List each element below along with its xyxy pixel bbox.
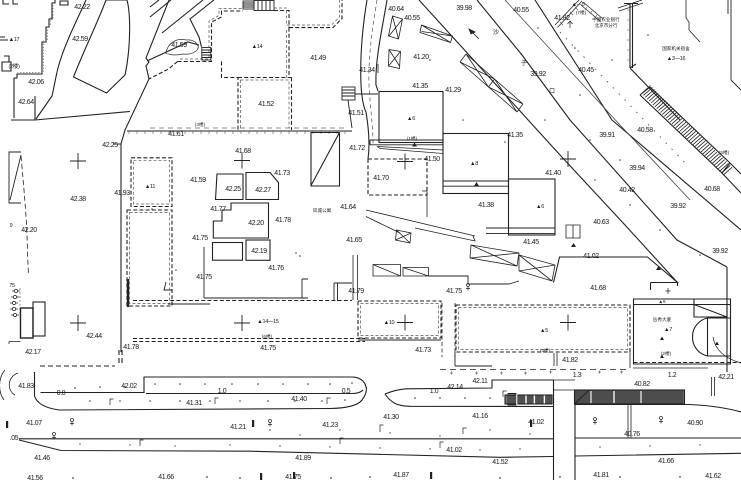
svg-text:41.76: 41.76 — [268, 265, 284, 272]
svg-text:1.0: 1.0 — [218, 388, 227, 395]
svg-text:42.02: 42.02 — [121, 383, 137, 390]
svg-text:▲10: ▲10 — [384, 320, 395, 326]
svg-text:42.25: 42.25 — [225, 186, 241, 193]
svg-text:42.21: 42.21 — [718, 374, 734, 381]
svg-text:41.78: 41.78 — [275, 217, 291, 224]
svg-text:(3楼): (3楼) — [540, 347, 551, 354]
svg-text:41.82: 41.82 — [554, 15, 570, 22]
svg-text:41.31: 41.31 — [186, 400, 202, 407]
svg-text:▲6: ▲6 — [658, 299, 666, 304]
svg-text:1.0: 1.0 — [430, 388, 439, 395]
svg-text:沙: 沙 — [493, 29, 499, 36]
svg-text:41.02: 41.02 — [528, 419, 544, 426]
svg-text:40.64: 40.64 — [388, 6, 404, 13]
svg-text:41.61: 41.61 — [168, 131, 184, 138]
svg-text:41.75: 41.75 — [446, 288, 462, 295]
svg-text:(1楼): (1楼) — [407, 135, 418, 142]
svg-text:39.98: 39.98 — [456, 5, 472, 12]
svg-text:.05: .05 — [10, 435, 19, 442]
svg-text:41.87: 41.87 — [393, 472, 409, 479]
svg-text:42.64: 42.64 — [18, 99, 34, 106]
svg-text:凤城公寓: 凤城公寓 — [313, 207, 332, 214]
svg-text:40.76: 40.76 — [624, 431, 640, 438]
svg-text:41.49: 41.49 — [310, 55, 326, 62]
svg-text:42.14: 42.14 — [447, 384, 463, 391]
svg-text:42.44: 42.44 — [86, 333, 102, 340]
svg-text:41.89: 41.89 — [295, 455, 311, 462]
svg-text:40.82: 40.82 — [634, 381, 650, 388]
svg-text:41.75: 41.75 — [260, 345, 276, 352]
svg-text:41.16: 41.16 — [472, 413, 488, 420]
svg-text:41.34: 41.34 — [359, 67, 375, 74]
svg-text:41.07: 41.07 — [26, 420, 42, 427]
svg-text:40.55: 40.55 — [513, 7, 529, 14]
svg-text:42.20: 42.20 — [21, 227, 37, 234]
svg-text:(2楼): (2楼) — [8, 62, 19, 70]
svg-text:42.17: 42.17 — [25, 349, 41, 356]
svg-text:42.19: 42.19 — [251, 248, 267, 255]
svg-text:42.11: 42.11 — [473, 378, 489, 385]
svg-text:▲5: ▲5 — [540, 328, 548, 334]
svg-text:40.63: 40.63 — [593, 219, 609, 226]
svg-text:▲—5: ▲—5 — [571, 2, 584, 8]
svg-text:40.90: 40.90 — [687, 420, 703, 427]
svg-text:41.50: 41.50 — [424, 156, 440, 163]
svg-text:岳秀大厦: 岳秀大厦 — [653, 316, 672, 323]
svg-text:(5楼): (5楼) — [719, 149, 730, 156]
svg-text:41.66: 41.66 — [158, 474, 174, 480]
svg-text:41.38: 41.38 — [478, 202, 494, 209]
svg-text:41.52: 41.52 — [492, 459, 508, 466]
svg-text:41.52: 41.52 — [258, 101, 274, 108]
svg-text:41.73: 41.73 — [274, 170, 290, 177]
svg-text:41.82: 41.82 — [562, 357, 578, 364]
svg-text:▲17: ▲17 — [9, 37, 20, 43]
svg-text:42.27: 42.27 — [255, 187, 271, 194]
svg-text:41.62: 41.62 — [705, 473, 721, 480]
svg-text:40.58: 40.58 — [637, 127, 653, 134]
svg-text:(7楼): (7楼) — [576, 9, 587, 16]
svg-text:▲14: ▲14 — [252, 44, 263, 50]
svg-text:41.29: 41.29 — [445, 87, 461, 94]
svg-text:0.5: 0.5 — [342, 388, 351, 395]
svg-text:42.59: 42.59 — [72, 36, 88, 43]
svg-text:(6楼): (6楼) — [262, 333, 273, 340]
svg-text:41.81: 41.81 — [593, 472, 609, 479]
svg-text:40.45: 40.45 — [578, 67, 594, 74]
svg-text:(3楼): (3楼) — [195, 121, 206, 128]
svg-text:39.92: 39.92 — [670, 203, 686, 210]
svg-text:41.64: 41.64 — [340, 204, 356, 211]
svg-text:39.92: 39.92 — [530, 71, 546, 78]
svg-text:41.66: 41.66 — [658, 458, 674, 465]
svg-text:北京市分行: 北京市分行 — [595, 22, 618, 29]
svg-text:42.22: 42.22 — [74, 4, 90, 11]
svg-text:75: 75 — [9, 283, 15, 289]
svg-text:▲6: ▲6 — [407, 116, 415, 122]
svg-text:41.46: 41.46 — [34, 455, 50, 462]
svg-text:41.21: 41.21 — [230, 424, 246, 431]
svg-text:▲14—15: ▲14—15 — [257, 319, 279, 325]
svg-text:▲11: ▲11 — [145, 184, 155, 190]
svg-text:42.38: 42.38 — [70, 196, 86, 203]
svg-text:41.75: 41.75 — [196, 274, 212, 281]
svg-text:▲7: ▲7 — [664, 327, 672, 333]
svg-text:41.70: 41.70 — [373, 175, 389, 182]
svg-text:41.40: 41.40 — [291, 396, 307, 403]
svg-text:▲8: ▲8 — [470, 161, 478, 167]
svg-text:(2楼): (2楼) — [661, 350, 672, 357]
svg-text:42.20: 42.20 — [248, 220, 264, 227]
svg-text:41.75: 41.75 — [285, 474, 301, 480]
svg-text:41.35: 41.35 — [412, 83, 428, 90]
svg-text:39.92: 39.92 — [712, 248, 728, 255]
svg-text:1.3: 1.3 — [573, 372, 582, 379]
svg-text:41.65: 41.65 — [346, 237, 362, 244]
svg-text:41.75: 41.75 — [192, 235, 208, 242]
svg-text:41.59: 41.59 — [190, 177, 206, 184]
svg-text:40.42: 40.42 — [619, 187, 635, 194]
svg-text:中国农业银行: 中国农业银行 — [592, 16, 620, 23]
svg-text:41.59: 41.59 — [171, 42, 187, 49]
svg-text:9: 9 — [10, 223, 13, 229]
svg-text:41.78: 41.78 — [123, 344, 139, 351]
svg-text:39.91: 39.91 — [599, 132, 615, 139]
svg-text:42.06: 42.06 — [28, 79, 44, 86]
svg-text:41.45: 41.45 — [523, 239, 539, 246]
svg-text:42.25: 42.25 — [102, 142, 118, 149]
svg-text:41.79: 41.79 — [348, 288, 364, 295]
svg-text:41.30: 41.30 — [383, 414, 399, 421]
svg-text:国家机关宿舍: 国家机关宿舍 — [662, 45, 690, 52]
svg-text:41.77: 41.77 — [210, 206, 226, 213]
svg-text:口: 口 — [549, 88, 555, 95]
svg-text:41.02: 41.02 — [446, 447, 462, 454]
svg-text:1.2: 1.2 — [668, 372, 677, 379]
svg-text:40.55: 40.55 — [404, 15, 420, 22]
svg-text:41.35: 41.35 — [507, 132, 523, 139]
svg-text:41.23: 41.23 — [322, 422, 338, 429]
svg-text:41.51: 41.51 — [348, 110, 364, 117]
svg-text:41.83: 41.83 — [18, 383, 34, 390]
svg-text:0.8: 0.8 — [57, 390, 66, 397]
svg-text:41.68: 41.68 — [590, 285, 606, 292]
svg-text:41.72: 41.72 — [349, 145, 365, 152]
svg-text:40.68: 40.68 — [704, 186, 720, 193]
svg-text:39.94: 39.94 — [629, 165, 645, 172]
svg-text:▲6: ▲6 — [536, 204, 544, 210]
svg-text:41.20: 41.20 — [413, 54, 429, 61]
svg-text:41.40: 41.40 — [545, 170, 561, 177]
svg-text:41.73: 41.73 — [415, 347, 431, 354]
svg-text:子: 子 — [521, 60, 527, 67]
svg-text:41.68: 41.68 — [235, 148, 251, 155]
svg-text:41.02: 41.02 — [583, 253, 599, 260]
svg-text:▲3—16: ▲3—16 — [667, 56, 686, 62]
svg-text:41.56: 41.56 — [27, 475, 43, 480]
svg-text:41.93: 41.93 — [114, 190, 130, 197]
